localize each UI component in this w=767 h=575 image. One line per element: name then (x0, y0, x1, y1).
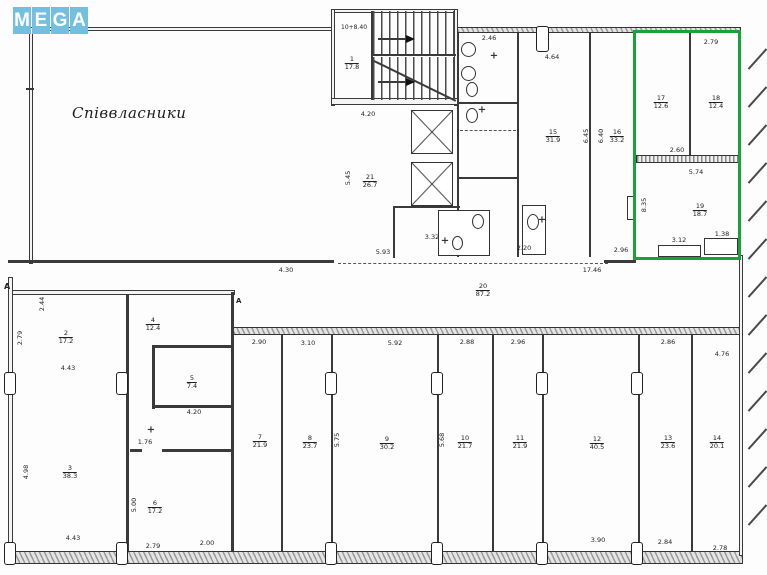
dim-label: 4.98 (22, 465, 30, 479)
logo-letter: A (70, 7, 88, 34)
hatch-mark (748, 428, 767, 449)
hatch-mark (748, 124, 767, 145)
room-label: 617.2 (148, 500, 162, 516)
hatch-mark (748, 86, 767, 107)
wall (152, 345, 234, 348)
dim-label: 2.79 (146, 542, 160, 550)
dim-label: 1.76 (138, 438, 152, 446)
room-label: 2126.7 (363, 174, 377, 190)
room-area: 12.4 (709, 103, 723, 111)
wall (233, 327, 741, 335)
wall (691, 335, 693, 551)
hatch-mark (748, 504, 767, 525)
wall (26, 88, 34, 90)
room-area: 7.4 (187, 383, 197, 391)
dim-label: 17.46 (583, 266, 602, 274)
dim-label: 2.00 (200, 539, 214, 547)
stair-arrow-icon (406, 35, 415, 43)
section-marker: А (4, 282, 10, 291)
dim-label: 5.00 (130, 498, 138, 512)
toilet-icon (472, 214, 484, 229)
dim-label: 4.64 (545, 53, 559, 61)
dim-label: 2.88 (460, 338, 474, 346)
room-label: 1712.6 (654, 95, 668, 111)
stair-arrow-stem (378, 38, 408, 40)
hatch-mark (748, 314, 767, 335)
sink-icon: + (147, 425, 155, 436)
room-label: 217.2 (59, 330, 73, 346)
room-label: 1323.6 (661, 435, 675, 451)
wall (739, 255, 743, 556)
room-label: 1812.4 (709, 95, 723, 111)
room-area: 87.2 (476, 291, 490, 299)
dim-label: 6.40 (597, 129, 605, 143)
room-label: 2087.2 (476, 283, 490, 299)
sink-icon: + (478, 105, 486, 116)
logo-letter: M (13, 7, 31, 34)
room-area: 33.2 (610, 137, 624, 145)
sink-icon: + (538, 215, 546, 226)
dim-label: 5.75 (333, 433, 341, 447)
room-area: 21.9 (253, 442, 267, 450)
hatch-mark (748, 238, 767, 259)
mega-logo: M E G A (13, 7, 88, 34)
highlight-rectangle (633, 30, 741, 260)
wall (517, 33, 519, 257)
dim-label: 2.60 (670, 146, 684, 154)
room-area: 31.9 (546, 137, 560, 145)
room-area: 17.2 (59, 338, 73, 346)
hatch-mark (748, 276, 767, 297)
hatch-mark (748, 200, 767, 221)
dim-label: 6.45 (582, 129, 590, 143)
room-area: 20.1 (710, 443, 724, 451)
toilet-icon (466, 82, 478, 97)
stair-landing-line (373, 54, 456, 56)
dim-label: 2.96 (614, 246, 628, 254)
column (536, 542, 548, 565)
room-area: 26.7 (363, 182, 377, 190)
dim-label: 3.12 (672, 236, 686, 244)
room-area: 40.5 (590, 444, 604, 452)
wall (492, 335, 494, 551)
column (325, 542, 337, 565)
room-label: 1531.9 (546, 129, 560, 145)
dim-label: 5.68 (438, 433, 446, 447)
dim-label: 2.46 (482, 34, 496, 42)
dim-label: 4.76 (715, 350, 729, 358)
dim-label: 3.10 (301, 339, 315, 347)
dim-label: 2.44 (38, 297, 46, 311)
room-label: 1633.2 (610, 129, 624, 145)
dim-label: 4.20 (361, 110, 375, 118)
dim-label: 2.86 (661, 338, 675, 346)
dim-label: 4.30 (279, 266, 293, 274)
room-area: 17.2 (148, 508, 162, 516)
wall (152, 345, 155, 409)
hatch-mark (748, 352, 767, 373)
dim-label: 4.43 (66, 534, 80, 542)
hatch-mark (748, 466, 767, 487)
room-area: 21.9 (513, 443, 527, 451)
dim-label: 3.90 (591, 536, 605, 544)
dim-label: 1.38 (715, 230, 729, 238)
room-label: 930.2 (380, 436, 394, 452)
toilet-icon (461, 66, 476, 81)
dim-label: 2.90 (252, 338, 266, 346)
room-area: 21.7 (458, 443, 472, 451)
wall (457, 177, 519, 179)
stair-level-mark: 10+8.40 (341, 24, 367, 31)
column (431, 372, 443, 395)
wall (8, 277, 13, 557)
column (4, 372, 16, 395)
dim-label: 5.45 (344, 171, 352, 185)
stall-dashed-line (460, 130, 516, 131)
corridor-dashed-line (338, 263, 608, 264)
column (536, 372, 548, 395)
stair-arrow-stem (378, 81, 408, 83)
room-label: 1918.7 (693, 203, 707, 219)
column (631, 542, 643, 565)
wall (457, 102, 519, 104)
hatch-mark (748, 162, 767, 183)
room-area: 18.7 (693, 211, 707, 219)
wall (331, 9, 335, 106)
dim-label: 5.92 (388, 339, 402, 347)
wall (393, 206, 395, 258)
room-label: 1121.9 (513, 435, 527, 451)
wall (542, 335, 544, 551)
wall (231, 292, 234, 553)
room-area: 30.2 (380, 444, 394, 452)
dim-label: 8.35 (640, 198, 648, 212)
column (116, 372, 128, 395)
wall (604, 260, 636, 263)
dim-label: 5.74 (689, 168, 703, 176)
room-label: 412.4 (146, 317, 160, 333)
wall (395, 206, 460, 208)
hatch-mark (748, 390, 767, 411)
logo-letter: G (51, 7, 69, 34)
toilet-icon (466, 108, 478, 123)
stair-flight (373, 11, 456, 55)
coowners-label: Співвласники (72, 104, 186, 122)
wall (162, 449, 234, 452)
wall (8, 260, 334, 263)
dim-label: 3.32 (425, 233, 439, 241)
wall (8, 290, 235, 295)
room-label: 338.3 (63, 465, 77, 481)
column (431, 542, 443, 565)
wall (29, 27, 33, 264)
room-area: 23.7 (303, 443, 317, 451)
room-label: 823.7 (303, 435, 317, 451)
dim-label: 2.20 (517, 244, 531, 252)
elevator-shaft-icon (411, 162, 453, 206)
stair-arrow-icon (406, 78, 415, 86)
room-label: 1420.1 (710, 435, 724, 451)
dim-label: 4.43 (61, 364, 75, 372)
wall (126, 294, 129, 553)
dim-label: 2.79 (704, 38, 718, 46)
sink-icon: + (490, 51, 498, 62)
dim-label: 2.79 (16, 331, 24, 345)
sink-icon: + (441, 236, 449, 247)
wall (281, 335, 283, 551)
column (4, 542, 16, 565)
room-area: 38.3 (63, 473, 77, 481)
column (116, 542, 128, 565)
wall (130, 449, 142, 452)
wall (589, 33, 591, 257)
dim-label: 2.96 (511, 338, 525, 346)
room-label: 1021.7 (458, 435, 472, 451)
room-label: 57.4 (187, 375, 197, 391)
room-area: 23.6 (661, 443, 675, 451)
room-area: 17.8 (345, 64, 359, 72)
column (325, 372, 337, 395)
toilet-icon (461, 42, 476, 57)
dim-label: 2.84 (658, 538, 672, 546)
room-area: 12.6 (654, 103, 668, 111)
column (631, 372, 643, 395)
column (536, 26, 549, 52)
elevator-shaft-icon (411, 110, 453, 154)
room-label: 721.9 (253, 434, 267, 450)
room-label: 1240.5 (590, 436, 604, 452)
dim-label: 4.20 (187, 408, 201, 416)
dim-label: 5.93 (376, 248, 390, 256)
floor-plan-canvas: M E G A Співвласники (0, 0, 767, 575)
room-label: 117.8 (345, 56, 359, 72)
dim-label: 2.78 (713, 544, 727, 552)
room-area: 12.4 (146, 325, 160, 333)
hatch-mark (748, 48, 767, 69)
logo-letter: E (32, 7, 50, 34)
wall (638, 335, 640, 551)
section-marker: А (236, 297, 241, 305)
toilet-icon (452, 236, 463, 250)
